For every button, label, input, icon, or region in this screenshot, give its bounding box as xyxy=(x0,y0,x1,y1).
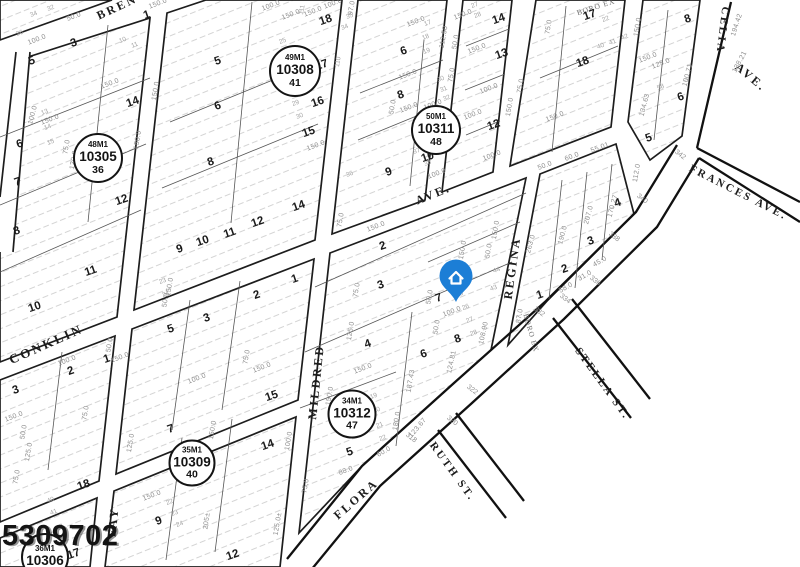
lot-number: 18 xyxy=(575,55,591,70)
lot-number: 6 xyxy=(213,101,223,114)
lot-number: 14 xyxy=(125,95,141,110)
street-label: FLORA xyxy=(331,477,380,522)
dimension-label: 41 xyxy=(608,39,617,48)
lot-number: 8 xyxy=(683,14,693,27)
dimension-label: 150.0 xyxy=(505,97,515,117)
dimension-label: 207.0 xyxy=(583,205,595,225)
dimension-label: 30 xyxy=(295,113,304,122)
dimension-label: 50.0 xyxy=(105,337,114,353)
dimension-label: 22 xyxy=(601,16,610,25)
block-circle: 35M11030940 xyxy=(169,440,216,487)
block-circle-sub: 41 xyxy=(289,78,301,89)
lot-number: 5 xyxy=(213,56,223,69)
dimension-label: 45.0 xyxy=(592,255,608,268)
dimension-label: 150.0 xyxy=(366,220,386,233)
dimension-label: 75.0 xyxy=(352,282,361,298)
lot-number: 2 xyxy=(560,264,570,277)
dimension-label: 75.0 xyxy=(336,212,345,228)
lot-number: 3 xyxy=(376,280,386,293)
dimension-label: 22 xyxy=(378,435,387,444)
dimension-label: 194.42 xyxy=(730,13,744,37)
dimension-label: 50.0 xyxy=(537,160,553,172)
street-label: FRANCES AVE. xyxy=(687,163,789,222)
house-number: 322 xyxy=(465,384,479,397)
lot-number: 12 xyxy=(250,215,266,230)
dimension-label: 29 xyxy=(291,100,300,109)
lot-number: 9 xyxy=(154,516,164,529)
dimension-label: 100.0 xyxy=(427,167,447,180)
block-circle-sub: 40 xyxy=(186,470,198,481)
dimension-label: 123.67 xyxy=(408,417,428,439)
lot-number: 5 xyxy=(27,56,37,69)
dimension-label: 34 xyxy=(29,11,38,20)
lot-number: 14 xyxy=(291,199,307,214)
lot-number: 8 xyxy=(453,334,463,347)
block-circle: 50M11031148 xyxy=(411,105,461,155)
photo-id-stamp: 5309702 xyxy=(2,520,118,553)
block-circle-m: 49M1 xyxy=(285,54,305,62)
dimension-label: 108.90 xyxy=(478,321,490,345)
dimension-label: 100.0 xyxy=(323,0,343,11)
dimension-label: 75.0 xyxy=(544,19,553,35)
lot-number: 11 xyxy=(222,227,237,242)
dimension-label: 50.0 xyxy=(19,424,28,440)
dimension-label: 23 xyxy=(170,510,179,519)
dimension-label: 11 xyxy=(131,42,140,50)
house-number: 320 xyxy=(445,415,459,428)
house-number: 336 xyxy=(588,275,602,288)
dimension-label: 150.0 xyxy=(208,420,218,440)
dimension-label: 150.0 xyxy=(110,351,130,364)
dimension-label: 150.0 xyxy=(398,68,418,81)
dimension-label: 40 xyxy=(596,43,605,52)
dimension-label: 50.0 xyxy=(432,319,441,335)
lot-number: 14 xyxy=(491,12,507,27)
dimension-label: 75.0 xyxy=(242,349,251,365)
dimension-label: 100.0 xyxy=(261,0,281,13)
block-circle-num: 10305 xyxy=(79,150,117,164)
block-circle-num: 10306 xyxy=(26,554,64,567)
block-circle: 49M11030841 xyxy=(269,45,321,97)
dimension-label: 27 xyxy=(465,317,474,326)
lot-number: 7 xyxy=(13,177,23,190)
lot-number: 1 xyxy=(142,10,152,23)
lot-number: 7 xyxy=(166,424,176,437)
map-canvas[interactable]: BRENCONKLINFAYMILDREDAVE.REGINAFLORARUTH… xyxy=(0,0,800,567)
street-label: STELLA ST. xyxy=(572,346,631,422)
lot-number: 6 xyxy=(15,139,25,152)
lot-number: 8 xyxy=(12,226,22,239)
house-number: 332 xyxy=(532,306,546,319)
block-circle-m: 35M1 xyxy=(182,446,202,454)
dimension-label: 55.01 xyxy=(590,141,610,154)
lot-number: 5 xyxy=(644,133,654,146)
pin-balloon xyxy=(440,260,473,303)
dimension-label: 22 xyxy=(165,499,174,508)
lot-number: 16 xyxy=(310,95,326,110)
dimension-label: 17 xyxy=(423,20,432,29)
block-circle-num: 10312 xyxy=(333,406,371,420)
lot-number: 10 xyxy=(27,300,43,315)
dimension-label: 150.0 xyxy=(467,42,487,55)
dimension-label: 100.0 xyxy=(27,33,47,46)
dimension-label: 28 xyxy=(469,330,478,339)
dimension-label: 100.0 xyxy=(463,108,483,121)
dimension-label: 50.0 xyxy=(388,99,397,115)
dimension-label: 100.0 xyxy=(442,305,462,318)
dimension-label: 134.63 xyxy=(639,93,652,117)
block-circle-num: 10308 xyxy=(276,63,314,77)
dimension-label: 180.0 xyxy=(392,411,402,431)
location-pin[interactable] xyxy=(434,256,478,306)
dimension-label: 125.0 xyxy=(346,321,356,341)
dimension-label: 112.0 xyxy=(632,163,642,182)
dimension-label: 75.0 xyxy=(301,478,310,494)
lot-number: 15 xyxy=(264,389,280,404)
dimension-label: 40 xyxy=(46,497,55,506)
lot-number: 3 xyxy=(202,313,212,326)
lot-number: 9 xyxy=(384,167,394,180)
dimension-label: 150.0 xyxy=(151,81,161,101)
dimension-label: 150.0 xyxy=(491,220,501,240)
dimension-label: 150.0 xyxy=(306,139,326,152)
dimension-label: 75.0 xyxy=(447,67,456,83)
dimension-label: 50.0 xyxy=(451,34,460,50)
block-circle-sub: 48 xyxy=(430,137,442,148)
dimension-label: 125.0 xyxy=(24,442,34,462)
dimension-label: 27 xyxy=(470,2,479,11)
dimension-label: 187.43 xyxy=(406,369,417,393)
dimension-label: 88.0 xyxy=(338,465,354,477)
block-circle-m: 50M1 xyxy=(426,113,446,121)
dimension-label: 10 xyxy=(118,37,127,46)
dimension-label: 28 xyxy=(473,12,482,21)
dimension-label: 25 xyxy=(278,38,287,47)
dimension-label: 150.0 xyxy=(142,489,162,502)
block-circle-sub: 36 xyxy=(92,165,104,176)
dimension-label: 58.0 xyxy=(558,281,574,294)
dimension-label: 100.0 xyxy=(27,105,39,125)
dimension-label: 19 xyxy=(422,48,431,57)
lot-number: 12 xyxy=(225,548,241,563)
lot-number: 14 xyxy=(260,438,276,453)
lot-number: 6 xyxy=(676,92,686,105)
lot-number: 10 xyxy=(195,234,211,249)
lot-number: 15 xyxy=(301,125,317,140)
lot-number: 18 xyxy=(318,13,334,28)
block-circle: 34M11031247 xyxy=(328,390,377,439)
dimension-label: 125.0± xyxy=(273,512,284,536)
dimension-label: 42 xyxy=(620,34,629,43)
dimension-label: 18 xyxy=(421,34,430,43)
dimension-label: 125.0 xyxy=(126,433,136,453)
lot-number: 3 xyxy=(586,236,596,249)
street-label: RUTH ST. xyxy=(427,440,477,503)
dimension-label: 100.0 xyxy=(187,372,207,385)
dimension-label: 75.0 xyxy=(12,469,21,485)
dimension-label: 32 xyxy=(442,95,451,104)
dimension-label: 150.0 xyxy=(252,361,272,374)
dimension-label: 58 xyxy=(656,84,665,93)
dimension-label: 32 xyxy=(46,5,55,14)
lot-number: 1 xyxy=(535,290,545,303)
block-circle-num: 10309 xyxy=(173,455,211,469)
street-label: MILDRED xyxy=(306,344,326,420)
dimension-label: 100.0 xyxy=(482,149,502,162)
dimension-label: 75.0 xyxy=(81,405,90,421)
street-label: BREN xyxy=(95,0,139,22)
lot-number: 18 xyxy=(76,478,92,493)
lot-number: 8 xyxy=(206,157,216,170)
house-number: 340 xyxy=(635,193,649,206)
dimension-label: 60.0 xyxy=(376,445,392,458)
lot-number: 3 xyxy=(11,385,21,398)
lot-number: 12 xyxy=(114,193,130,208)
dimension-label: 14 xyxy=(43,124,52,133)
block-circle: 48M11030536 xyxy=(73,133,123,183)
dimension-label: 150.0 xyxy=(4,410,24,423)
dimension-label: 75.0 xyxy=(62,139,71,155)
lot-number: 13 xyxy=(494,47,510,62)
street-label: AVE. xyxy=(414,182,453,207)
lot-number: 6 xyxy=(399,46,409,59)
lot-number: 9 xyxy=(175,244,185,257)
block-circle-num: 10311 xyxy=(418,122,455,136)
dimension-label: 150.0 xyxy=(545,110,565,123)
dimension-label: 24 xyxy=(175,521,184,530)
dimension-label: 75.0 xyxy=(516,78,525,94)
dimension-label: 50.0 xyxy=(484,243,493,259)
dimension-label: 41 xyxy=(49,509,58,518)
dimension-label: 150.0 xyxy=(633,17,643,37)
dimension-label: 150.0 xyxy=(100,77,120,90)
dimension-label: 263.0 xyxy=(525,234,537,254)
dimension-label: 150.0 xyxy=(133,130,143,150)
dimension-label: 150.0 xyxy=(148,0,168,11)
block-circle-m: 48M1 xyxy=(88,141,108,149)
dimension-label: 21 xyxy=(375,422,384,431)
dimension-label: 205± xyxy=(202,512,211,530)
lot-number: 12 xyxy=(486,118,502,133)
dimension-label: 100.0 xyxy=(479,82,499,95)
dimension-label: 15 xyxy=(46,139,55,148)
block-circle-m: 34M1 xyxy=(342,397,362,405)
block-circle-sub: 47 xyxy=(346,421,358,432)
dimension-label: 190.0 xyxy=(557,225,569,245)
lot-number: 3 xyxy=(69,38,79,51)
lot-number: 2 xyxy=(66,366,76,379)
street-label: REGINA xyxy=(502,236,523,300)
lot-number: 5 xyxy=(345,447,355,460)
dimension-label: 110 xyxy=(335,56,343,67)
dimension-label: 60.0 xyxy=(564,151,580,163)
dimension-label: 112.50 xyxy=(439,25,450,49)
lot-number: 5 xyxy=(166,324,176,337)
dimension-label: 30 xyxy=(436,76,445,85)
dimension-label: 100.0 xyxy=(284,431,294,451)
dimension-label: 34 xyxy=(340,24,349,33)
lot-number: 2 xyxy=(252,290,262,303)
house-number: 338 xyxy=(607,231,621,244)
dimension-label: 44 xyxy=(492,267,501,276)
dimension-label: 43 xyxy=(489,285,498,294)
dimension-label: 36 xyxy=(345,171,354,180)
street-label: CELIA xyxy=(714,6,731,54)
lot-number: 1 xyxy=(290,274,300,287)
map-labels: BRENCONKLINFAYMILDREDAVE.REGINAFLORARUTH… xyxy=(0,0,800,567)
dimension-label: 124.81 xyxy=(446,350,458,374)
dimension-label: 100.71 xyxy=(682,63,695,87)
lot-number: 2 xyxy=(378,241,388,254)
lot-number: 4 xyxy=(363,339,373,352)
dimension-label: 150.0 xyxy=(453,8,473,21)
dimension-label: 50.0 xyxy=(66,11,82,23)
house-number: 342 xyxy=(673,149,687,162)
street-label: BORO EX xyxy=(522,313,540,353)
dimension-label: 36 xyxy=(15,30,24,39)
house-number: 334 xyxy=(558,293,572,306)
dimension-label: 150.0 xyxy=(353,362,373,375)
lot-number: 11 xyxy=(83,265,98,280)
lot-number: 6 xyxy=(419,349,429,362)
